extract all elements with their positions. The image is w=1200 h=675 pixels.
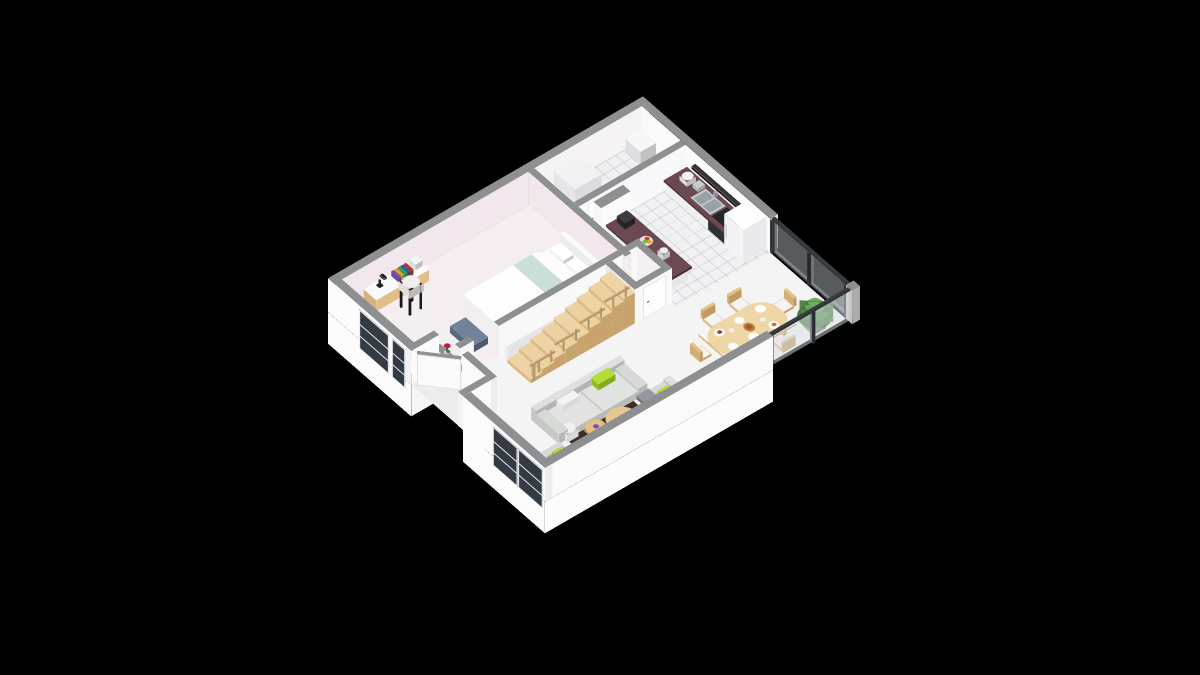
floor-plan-3d-render xyxy=(0,0,1200,675)
